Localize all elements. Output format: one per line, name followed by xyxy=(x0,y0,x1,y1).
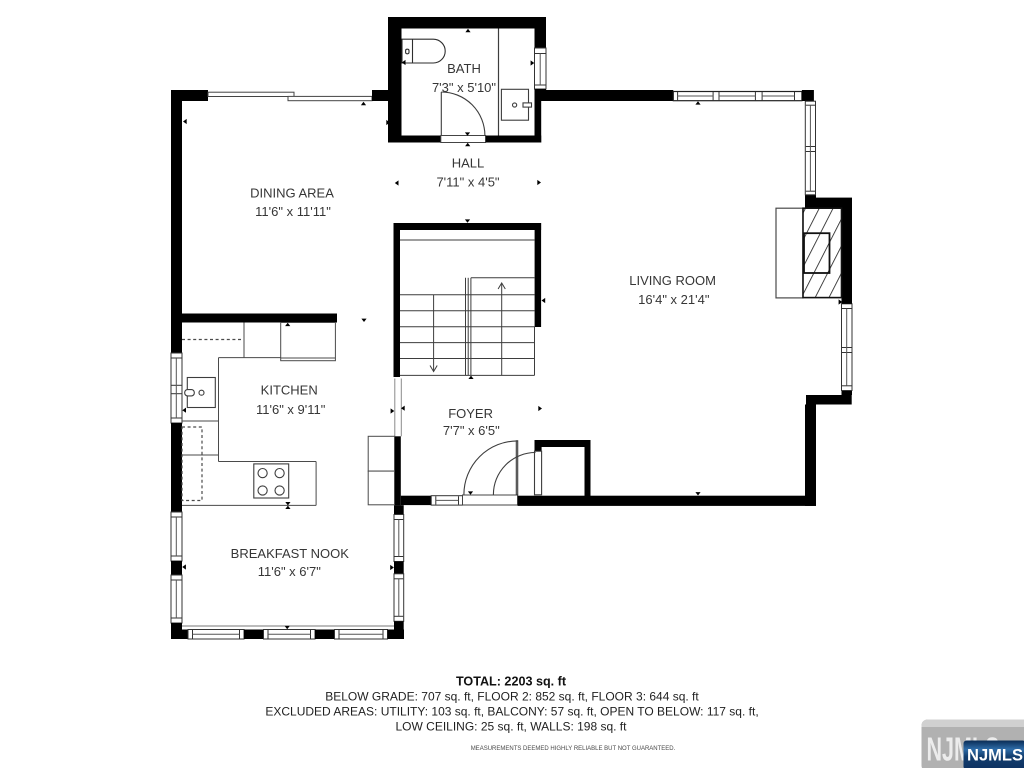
svg-text:11'6" x 6'7": 11'6" x 6'7" xyxy=(258,564,321,579)
svg-text:LOW CEILING: 25 sq. ft, WALLS:: LOW CEILING: 25 sq. ft, WALLS: 198 sq. f… xyxy=(396,720,628,734)
svg-text:BATH: BATH xyxy=(447,61,481,76)
svg-text:HALL: HALL xyxy=(452,156,485,171)
svg-text:EXCLUDED AREAS: UTILITY: 103 s: EXCLUDED AREAS: UTILITY: 103 sq. ft, BAL… xyxy=(265,705,758,719)
svg-text:11'6" x 11'11": 11'6" x 11'11" xyxy=(255,204,331,219)
svg-text:TOTAL: 2203 sq. ft: TOTAL: 2203 sq. ft xyxy=(456,675,567,689)
svg-text:NJMLS: NJMLS xyxy=(967,747,1023,765)
svg-text:7'3" x 5'10": 7'3" x 5'10" xyxy=(432,80,496,95)
svg-text:KITCHEN: KITCHEN xyxy=(261,383,318,398)
svg-text:7'7" x 6'5": 7'7" x 6'5" xyxy=(443,423,500,438)
svg-text:BREAKFAST NOOK: BREAKFAST NOOK xyxy=(231,546,350,561)
svg-text:11'6" x 9'11": 11'6" x 9'11" xyxy=(256,402,326,417)
svg-text:DINING AREA: DINING AREA xyxy=(250,186,334,201)
svg-text:MEASUREMENTS DEEMED HIGHLY REL: MEASUREMENTS DEEMED HIGHLY RELIABLE BUT … xyxy=(471,746,676,752)
svg-text:7'11" x 4'5": 7'11" x 4'5" xyxy=(436,175,499,190)
svg-text:BELOW GRADE: 707 sq. ft, FLOOR: BELOW GRADE: 707 sq. ft, FLOOR 2: 852 sq… xyxy=(325,690,699,704)
svg-text:16'4" x 21'4": 16'4" x 21'4" xyxy=(638,292,710,307)
svg-text:FOYER: FOYER xyxy=(448,406,493,421)
svg-text:LIVING ROOM: LIVING ROOM xyxy=(629,273,716,288)
